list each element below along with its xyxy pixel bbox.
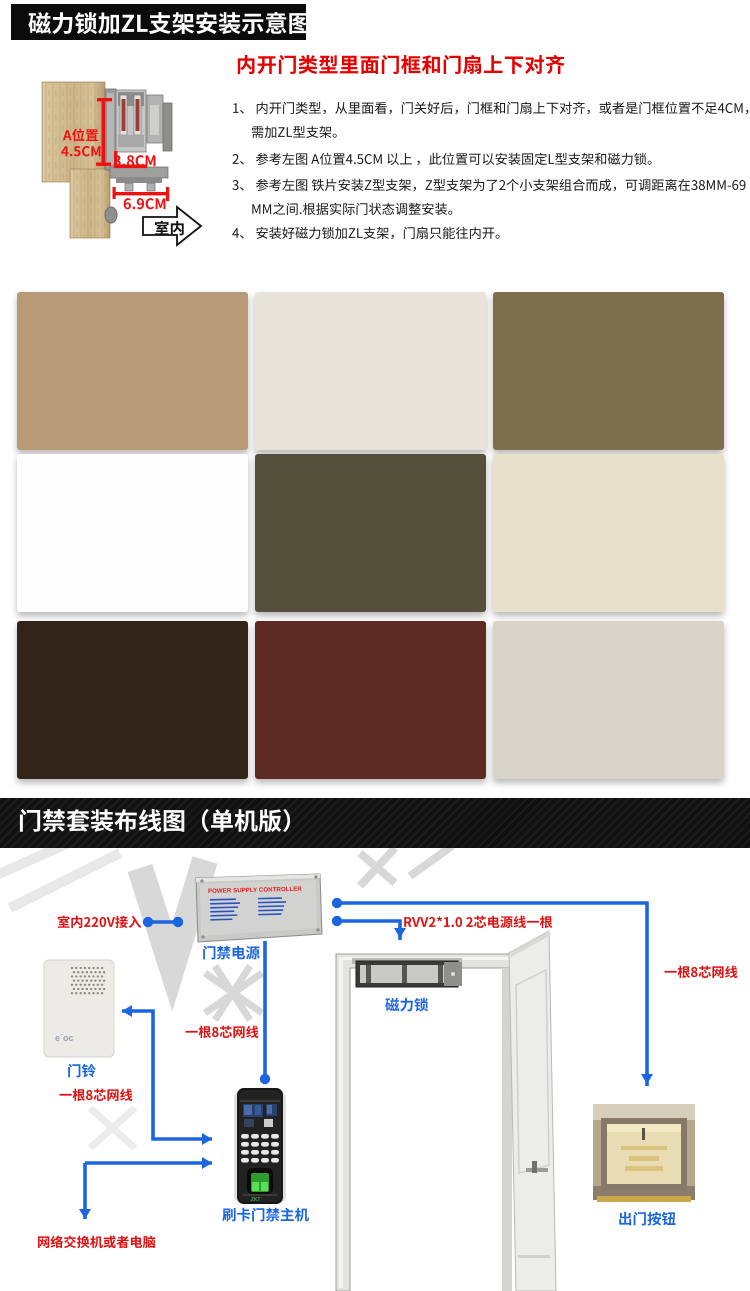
svg-text:e´oc: e´oc [55,1033,74,1043]
svg-text:ZKT: ZKT [251,1197,260,1203]
